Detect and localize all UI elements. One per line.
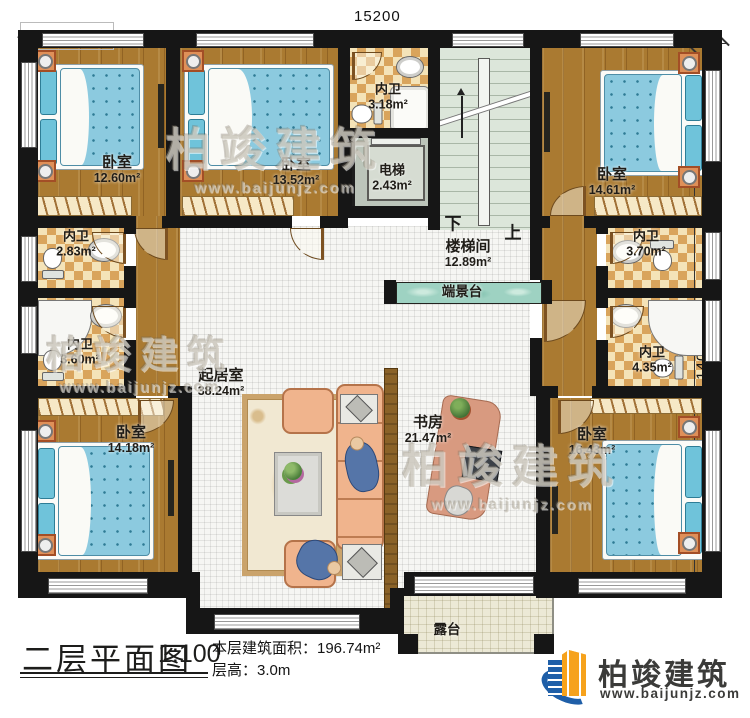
room-name: 内卫 xyxy=(368,82,408,97)
floor-plan: 卧室12.60m² 卧室13.52m² 内卫3.18m² 电梯2.43m² 楼梯… xyxy=(0,0,750,718)
plant-icon xyxy=(450,398,470,418)
room-label-bedroom-bottom-left: 卧室14.18m² xyxy=(108,424,155,456)
wall xyxy=(606,288,722,298)
lamp-icon xyxy=(186,54,201,69)
terrace-door-window xyxy=(414,576,534,594)
room-area: 14.61m² xyxy=(589,183,636,197)
tv-icon xyxy=(552,486,558,534)
window xyxy=(21,236,37,282)
lamp-icon xyxy=(682,420,697,435)
wall xyxy=(584,216,722,228)
room-name: 起居室 xyxy=(198,367,245,384)
window xyxy=(705,300,721,362)
room-name: 内卫 xyxy=(60,337,100,352)
wardrobe xyxy=(182,196,294,216)
wall xyxy=(124,216,136,234)
lamp-icon xyxy=(38,54,53,69)
coffee-table xyxy=(274,452,322,516)
lamp-icon xyxy=(38,424,53,439)
room-label-bedroom-top-left: 卧室12.60m² xyxy=(94,154,141,186)
wall xyxy=(344,128,432,138)
window xyxy=(214,614,360,630)
stair-arrowhead-icon xyxy=(457,88,465,95)
wall xyxy=(18,216,136,228)
room-label-console: 端景台 xyxy=(442,284,483,300)
wardrobe xyxy=(590,398,702,414)
nightstand xyxy=(182,160,204,182)
computer-monitor-icon xyxy=(462,445,503,482)
room-label-bedroom-bottom-right: 卧室16.43m² xyxy=(569,426,616,458)
tv-icon xyxy=(158,84,164,148)
side-table xyxy=(342,544,382,580)
lamp-icon xyxy=(682,536,697,551)
room-label-bath-left-upper: 内卫2.83m² xyxy=(56,229,96,258)
wall xyxy=(162,216,180,228)
window xyxy=(578,578,686,594)
window xyxy=(48,578,148,594)
room-label-living-room: 起居室38.24m² xyxy=(198,367,245,399)
room-area: 16.43m² xyxy=(569,443,616,457)
wall xyxy=(18,288,136,298)
room-name: 卧室 xyxy=(589,166,636,183)
room-label-study: 书房21.47m² xyxy=(405,414,452,446)
wall xyxy=(530,30,542,280)
stair-up-label: 上 xyxy=(505,219,522,244)
nightstand xyxy=(678,52,700,74)
room-name: 卧室 xyxy=(273,156,320,173)
room-area: 14.18m² xyxy=(108,441,155,455)
wall xyxy=(536,386,550,598)
side-table xyxy=(340,394,378,424)
bed xyxy=(184,64,334,170)
floor-area-text: 本层建筑面积：196.74m² xyxy=(212,638,380,659)
nightstand xyxy=(678,166,700,188)
room-label-bath-right-lower: 内卫4.35m² xyxy=(632,345,672,374)
room-name: 楼梯间 xyxy=(445,238,492,255)
stair-direction-arrow xyxy=(461,96,463,138)
room-area: 2.83m² xyxy=(56,244,96,258)
window xyxy=(21,306,37,354)
floor-height-text: 层高：3.0m xyxy=(212,660,290,681)
nightstand xyxy=(678,532,700,554)
window xyxy=(705,232,721,280)
room-label-bedroom-top-mid: 卧室13.52m² xyxy=(273,156,320,188)
title-underline xyxy=(20,677,208,678)
nightstand xyxy=(182,50,204,72)
lamp-icon xyxy=(38,538,53,553)
room-name: 内卫 xyxy=(56,229,96,244)
wardrobe xyxy=(594,196,702,216)
lamp-icon xyxy=(682,170,697,185)
wall xyxy=(124,266,136,308)
tv-icon xyxy=(168,460,174,516)
tv-icon xyxy=(544,92,550,152)
sink-icon xyxy=(396,56,424,78)
table-lamp-icon xyxy=(345,395,373,423)
armchair xyxy=(282,388,334,434)
window xyxy=(21,430,37,552)
room-area: 3.60m² xyxy=(60,352,100,366)
room-area: 13.52m² xyxy=(273,173,320,187)
wall xyxy=(180,216,292,228)
logo-building-icon xyxy=(548,660,562,696)
logo-website: www.baijunjz.com xyxy=(600,686,741,701)
room-label-terrace: 露台 xyxy=(434,622,461,638)
wall xyxy=(390,588,404,622)
room-name: 卧室 xyxy=(94,154,141,171)
room-area: 3.18m² xyxy=(368,97,408,111)
window xyxy=(196,33,314,47)
terrace-floor xyxy=(400,590,554,654)
logo-building-icon xyxy=(562,650,586,696)
room-label-elevator: 电梯2.43m² xyxy=(372,163,412,192)
bed xyxy=(600,70,706,176)
room-label-bath-top: 内卫3.18m² xyxy=(368,82,408,111)
room-area: 38.24m² xyxy=(198,384,245,398)
window xyxy=(705,70,721,162)
wall xyxy=(384,280,396,304)
stair-down-label: 下 xyxy=(445,210,462,235)
nightstand xyxy=(678,416,700,438)
room-label-bath-left-lower: 内卫3.60m² xyxy=(60,337,100,366)
room-label-bath-right-upper: 内卫3.70m² xyxy=(626,229,666,258)
room-name: 内卫 xyxy=(632,345,672,360)
wall xyxy=(398,634,418,654)
room-area: 4.35m² xyxy=(632,360,672,374)
wall xyxy=(166,48,180,216)
room-name: 卧室 xyxy=(569,426,616,443)
room-area: 12.89m² xyxy=(445,255,492,269)
wall xyxy=(592,386,722,398)
elevator-door xyxy=(371,138,421,145)
wall xyxy=(428,30,440,230)
flower-vase-icon xyxy=(284,462,302,480)
room-area: 21.47m² xyxy=(405,431,452,445)
wardrobe xyxy=(34,196,132,216)
room-name: 露台 xyxy=(434,622,461,638)
table-lamp-icon xyxy=(347,547,378,578)
room-name: 书房 xyxy=(405,414,452,431)
stair-handrail xyxy=(478,58,490,226)
window xyxy=(705,430,721,552)
room-area: 12.60m² xyxy=(94,171,141,185)
room-name: 电梯 xyxy=(372,163,412,178)
lamp-icon xyxy=(186,164,201,179)
wall xyxy=(344,206,440,218)
wall xyxy=(534,634,554,654)
lamp-icon xyxy=(682,56,697,71)
room-area: 2.43m² xyxy=(372,178,412,192)
wall xyxy=(542,216,550,228)
room-name: 端景台 xyxy=(442,284,483,300)
room-label-bedroom-top-right: 卧室14.61m² xyxy=(589,166,636,198)
room-area: 3.70m² xyxy=(626,244,666,258)
room-name: 卧室 xyxy=(108,424,155,441)
window xyxy=(42,33,144,47)
wall xyxy=(344,128,352,218)
title-underline xyxy=(20,672,208,674)
room-name: 内卫 xyxy=(626,229,666,244)
dimension-top-value: 15200 xyxy=(354,8,401,25)
window xyxy=(21,62,37,148)
lamp-icon xyxy=(38,164,53,179)
wall xyxy=(178,386,192,598)
room-label-stairwell: 楼梯间12.89m² xyxy=(445,238,492,270)
window xyxy=(452,33,524,47)
wall xyxy=(18,386,136,398)
window xyxy=(580,33,674,47)
wall xyxy=(596,266,608,308)
